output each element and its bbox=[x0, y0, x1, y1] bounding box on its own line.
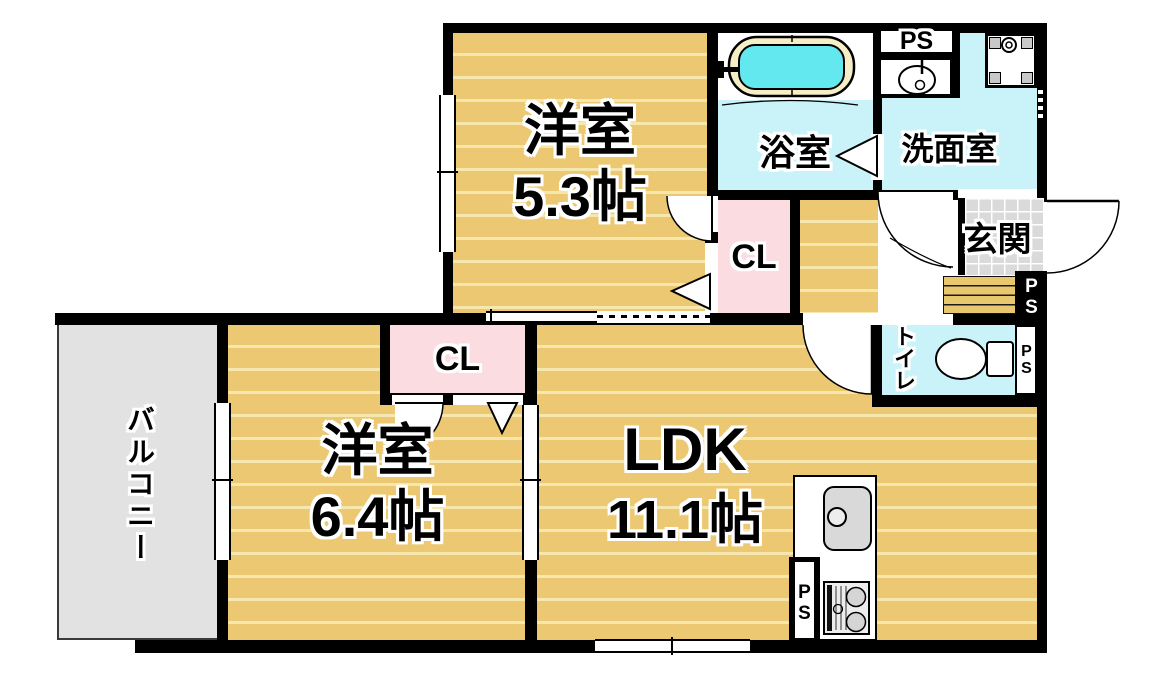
room-name: 浴室 bbox=[759, 132, 831, 173]
room-toilet-label: トイレ bbox=[888, 322, 918, 394]
washroom-door-swing bbox=[878, 192, 953, 267]
room-bedroom-lower-label: 洋室 6.4帖 bbox=[245, 418, 510, 550]
ps-label: PS bbox=[900, 27, 933, 55]
room-balcony-label: バルコニー bbox=[119, 405, 159, 565]
room-ldk-label: LDK 11.1帖 bbox=[530, 415, 840, 555]
room-name: LDK bbox=[530, 415, 840, 485]
entrance-door-swing bbox=[1047, 201, 1119, 273]
stove-burner-icon bbox=[847, 588, 866, 607]
room-name: CL bbox=[731, 238, 776, 276]
ps-label: PS bbox=[794, 582, 815, 624]
room-closet-upper-label: CL bbox=[718, 238, 790, 277]
room-size: 11.1帖 bbox=[530, 485, 840, 555]
washbasin-icon bbox=[899, 66, 935, 94]
closet-upper-folding-door-icon bbox=[672, 274, 710, 309]
room-name: 洋室 bbox=[245, 418, 510, 484]
room-closet-lower-label: CL bbox=[390, 340, 525, 379]
bathtub-water bbox=[739, 45, 844, 89]
room-name: 洗面室 bbox=[901, 131, 997, 167]
washer-faucet-icon bbox=[1002, 38, 1016, 52]
washbasin-drain-icon bbox=[916, 81, 925, 90]
bathtub-apron-curve bbox=[722, 101, 858, 106]
pipe-space-kitchen-label: PS bbox=[794, 572, 815, 634]
room-washroom-label: 洗面室 bbox=[872, 124, 1027, 170]
toilet-bowl-icon bbox=[936, 339, 986, 379]
stove-grill-icon bbox=[827, 585, 832, 631]
pipe-space-entrance-label: PS bbox=[1022, 275, 1041, 319]
room-bathroom-label: 浴室 bbox=[715, 124, 875, 176]
ps-label: PS bbox=[1018, 343, 1035, 377]
room-size: 5.3帖 bbox=[455, 164, 705, 230]
room-name: 洋室 bbox=[455, 98, 705, 164]
room-bedroom-upper-label: 洋室 5.3帖 bbox=[455, 98, 705, 230]
room-entrance-label: 玄関 bbox=[958, 212, 1037, 261]
pipe-space-top-label: PS bbox=[881, 27, 952, 56]
room-name: 玄関 bbox=[964, 221, 1032, 259]
floor-plan: 洋室 5.3帖 浴室 洗面室 PS 玄関 CL CL トイレ PS PS PS … bbox=[0, 0, 1172, 684]
room-name: トイレ bbox=[891, 325, 916, 391]
ps-label: PS bbox=[1021, 276, 1042, 318]
toilet-door-swing bbox=[803, 325, 872, 394]
bathtub-faucet-icon bbox=[722, 67, 740, 72]
stove-burner-icon bbox=[847, 613, 866, 632]
room-name: バルコニー bbox=[124, 405, 155, 565]
room-name: CL bbox=[435, 340, 480, 378]
room-size: 6.4帖 bbox=[245, 484, 510, 550]
pipe-space-toilet-label: PS bbox=[1017, 339, 1035, 381]
toilet-tank-icon bbox=[987, 342, 1013, 376]
